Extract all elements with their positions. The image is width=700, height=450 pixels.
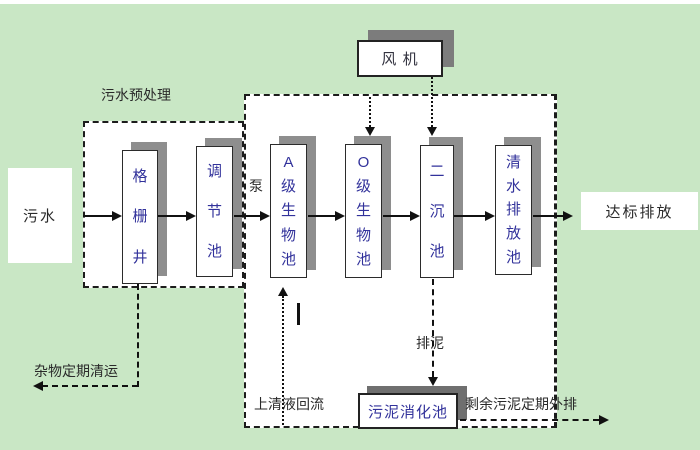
secondary-clarifier-tank: 二沉池	[420, 145, 454, 278]
tank-char: 格	[132, 169, 147, 184]
clarifier-to-cleanwater-line	[454, 215, 486, 217]
air-arrow-o-line	[369, 97, 371, 127]
tank-char: 池	[506, 250, 521, 265]
regulating-to-a-line	[234, 215, 261, 217]
air-arrow-clarifier-head	[427, 127, 437, 136]
tank-char: 调	[207, 164, 222, 179]
tank-char: 节	[207, 204, 222, 219]
supernatant-return-label: 上清液回流	[254, 397, 324, 412]
tank-char: 放	[506, 226, 521, 241]
tank-char: 栅	[132, 209, 147, 224]
debris-removal-vline	[137, 284, 139, 387]
sludge-discharge-head	[428, 377, 438, 386]
tank-char: 排	[506, 202, 521, 217]
effluent-box: 达标排放	[581, 192, 698, 230]
tank-char: 级	[356, 179, 371, 194]
tank-char: 清	[506, 155, 521, 170]
tank-char: 物	[281, 228, 296, 243]
tank-char: A	[283, 155, 293, 170]
air-arrow-clarifier-line	[431, 97, 433, 127]
regulating-to-a-head	[260, 211, 270, 221]
influent-arrow-line	[83, 215, 113, 217]
gridwell-to-regulating-head	[186, 211, 196, 221]
clean-water-discharge-tank: 清水排放池	[495, 145, 532, 275]
tank-char: 池	[429, 244, 444, 259]
a-to-o-line	[308, 215, 336, 217]
tank-char: O	[358, 155, 370, 170]
tank-char: 物	[356, 228, 371, 243]
fan-box: 风 机	[357, 40, 443, 77]
influent-box: 污水	[8, 168, 72, 263]
a-bio-tank: A级生物池	[270, 144, 307, 278]
excess-sludge-head	[599, 415, 609, 425]
tank-char: 二	[429, 164, 444, 179]
regulating-tank: 调节池	[196, 146, 233, 277]
tank-char: 级	[281, 179, 296, 194]
sludge-discharge-label: 排泥	[416, 336, 444, 351]
o-bio-tank: O级生物池	[345, 144, 382, 278]
a-to-o-head	[335, 211, 345, 221]
sludge-digester-box: 污泥消化池	[358, 393, 458, 429]
fan-stem-line	[431, 77, 433, 95]
cleanwater-to-effluent-head	[563, 211, 573, 221]
o-to-clarifier-line	[383, 215, 411, 217]
page-top-strip	[0, 0, 700, 4]
excess-sludge-line	[460, 419, 599, 421]
debris-removal-label: 杂物定期清运	[34, 364, 118, 379]
clarifier-to-cleanwater-head	[485, 211, 495, 221]
fan-label: 风 机	[381, 48, 418, 69]
sludge-digester-label: 污泥消化池	[368, 401, 448, 422]
tank-char: 生	[281, 203, 296, 218]
grid-well-tank: 格栅井	[122, 150, 158, 284]
cleanwater-to-effluent-line	[533, 215, 564, 217]
tank-char: 生	[356, 203, 371, 218]
effluent-label: 达标排放	[605, 201, 673, 222]
pretreatment-section-label: 污水预处理	[101, 88, 171, 103]
influent-arrow-head	[112, 211, 122, 221]
debris-removal-hline	[42, 385, 138, 387]
tank-char: 沉	[429, 204, 444, 219]
tank-char: 池	[281, 252, 296, 267]
excess-sludge-label: 剩余污泥定期外排	[465, 397, 577, 412]
tank-char: 井	[132, 250, 147, 265]
supernatant-return-head	[278, 287, 288, 296]
tank-char: 池	[207, 244, 222, 259]
gridwell-to-regulating-line	[158, 215, 187, 217]
tank-char: 池	[356, 252, 371, 267]
influent-label: 污水	[23, 205, 57, 226]
debris-removal-head	[33, 381, 43, 391]
pump-label: 泵	[249, 179, 263, 194]
supernatant-return-line	[282, 296, 284, 425]
sludge-discharge-line	[432, 279, 434, 377]
tank-char: 水	[506, 179, 521, 194]
tick-mark	[297, 303, 300, 325]
o-to-clarifier-head	[410, 211, 420, 221]
air-arrow-o-head	[365, 127, 375, 136]
